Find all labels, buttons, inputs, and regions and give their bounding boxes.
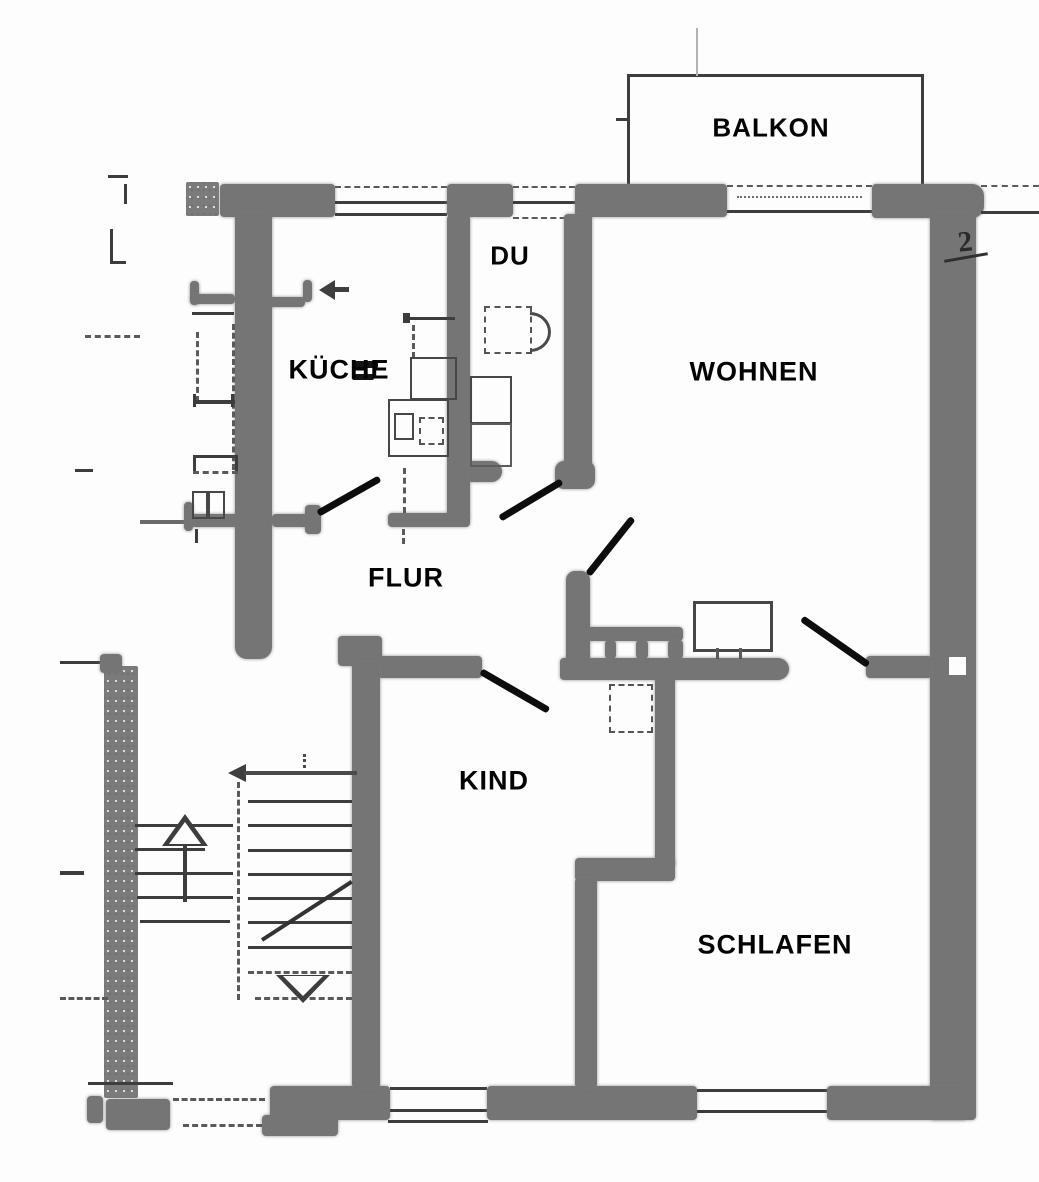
wall-kueche-flur-thin — [140, 520, 186, 524]
closet-divider-1 — [605, 640, 616, 659]
schlafen-dashed-fixture — [609, 684, 653, 733]
stairs-tread-left — [140, 920, 230, 923]
wardrobe-leg-2 — [739, 648, 742, 659]
neighbor-stub — [195, 529, 198, 543]
neighbor-line-right-2 — [981, 211, 1039, 214]
stairs-tread — [248, 897, 352, 900]
wardrobe-leg-1 — [716, 648, 719, 659]
wall-flur-schlafen — [560, 658, 789, 680]
exterior-wall-top-pier — [447, 184, 513, 217]
door-swing-du — [498, 478, 563, 521]
balcony-outline-right — [921, 74, 924, 188]
neighbor-dashdot-1 — [85, 335, 140, 338]
stairs-tread — [248, 849, 352, 852]
kueche-appliance-box — [410, 357, 457, 400]
window-kueche-mid-line — [335, 201, 447, 204]
neighbor-rect-dash — [193, 471, 238, 474]
balcony-door-outer-line — [727, 185, 872, 187]
balcony-door-inner-line — [727, 210, 872, 213]
exterior-wall-right-notch — [949, 657, 966, 675]
kueche-dash-lower-1 — [403, 468, 406, 513]
stairs-tread — [248, 824, 352, 827]
stairwell-left-dash-2 — [60, 997, 108, 1000]
door-swing-wohnen — [585, 516, 635, 577]
stairs-landing-line — [244, 771, 357, 775]
window-schlafen-inner-line — [697, 1110, 827, 1113]
wall-kind-top — [378, 656, 482, 678]
wall-kind-schlafen-lower — [575, 878, 597, 1088]
stairs-up-arrow-inner — [169, 822, 201, 844]
floor-plan-canvas: BALKON DU KÜCHE WOHNEN FLUR KIND SCHLAFE… — [0, 0, 1039, 1182]
exterior-wall-left-upper — [235, 212, 272, 659]
neighbor-bracket-3 — [110, 229, 113, 264]
window-kueche-inner-line — [335, 213, 447, 216]
washbasin-bowl-arc — [530, 312, 551, 352]
neighbor-line-2 — [193, 400, 235, 404]
room-label-wohnen: WOHNEN — [690, 357, 819, 388]
stairs-tread — [248, 800, 352, 803]
exterior-wall-bottom-jog — [262, 1115, 338, 1136]
window-du-outer-line — [513, 186, 575, 188]
neighbor-vdash-1 — [196, 332, 199, 402]
wall-du-wohnen — [564, 214, 592, 466]
exterior-wall-top-2 — [575, 184, 727, 217]
wall-kind-left — [352, 662, 380, 1088]
window-kind-inner-line — [390, 1109, 487, 1112]
sink-basin — [394, 413, 414, 440]
room-label-kueche: KÜCHE — [288, 355, 389, 386]
balcony-outline-top — [627, 74, 924, 77]
neighbor-tick-1 — [193, 394, 196, 407]
bottomleft-line — [88, 1082, 173, 1085]
closet-top-bar — [587, 627, 683, 641]
closet-pier — [566, 571, 590, 663]
window-kind-outer-line — [390, 1087, 487, 1090]
kueche-dash-lower-2 — [402, 529, 405, 544]
neighbor-line-1 — [192, 312, 234, 315]
stairwell-left-dash-1 — [60, 871, 84, 875]
closet-divider-2 — [636, 640, 648, 659]
schlafen-door-stub — [866, 656, 932, 678]
room-label-kind: KIND — [459, 766, 529, 797]
kueche-counter-line — [407, 317, 455, 320]
window-schlafen-outer-line — [697, 1089, 827, 1092]
du-fixture-2 — [470, 423, 512, 467]
stairwell-top-block — [100, 654, 122, 673]
room-label-du: DU — [490, 241, 530, 272]
stairwell-wall-left — [104, 666, 138, 1098]
wardrobe-fixture — [693, 601, 773, 652]
neighbor-rect-top — [193, 455, 238, 458]
window-kind-sill-line — [388, 1120, 488, 1123]
closet-divider-3 — [668, 640, 683, 659]
entry-landing-wall-right-cap — [303, 280, 312, 302]
balcony-tick — [616, 118, 630, 121]
neighbor-box-1 — [192, 491, 208, 519]
room-label-schlafen: SCHLAFEN — [698, 930, 853, 961]
neighbor-tick-2 — [231, 394, 234, 407]
window-kueche-outer-line — [335, 186, 447, 188]
stairs-walk-line-dots — [303, 754, 306, 774]
balcony-outline-left — [627, 74, 630, 188]
room-label-flur: FLUR — [368, 563, 444, 594]
stairs-tread — [248, 921, 352, 924]
stairs-inner-edge — [237, 782, 240, 1000]
scan-crease-line — [696, 28, 698, 76]
door-swing-kueche — [316, 475, 381, 516]
neighbor-bracket-2 — [124, 184, 127, 204]
room-label-balkon: BALKON — [712, 113, 829, 144]
entrance-arrow-tail — [333, 287, 349, 292]
sink-drainer — [419, 417, 444, 445]
stairs-down-arrow-inner — [283, 976, 323, 996]
stairwell-top-dash — [60, 661, 100, 664]
entry-landing-wall-right — [265, 297, 305, 307]
stairs-break-line — [261, 880, 353, 942]
wall-kueche-du-foot — [388, 513, 470, 527]
neighbor-box-2 — [208, 491, 225, 519]
door-swing-kind — [479, 668, 550, 713]
bottomleft-dash-1 — [173, 1098, 265, 1101]
bottomleft-dash-2 — [183, 1124, 262, 1127]
neighbor-line-right-1 — [981, 185, 1039, 187]
entry-landing-wall-left — [191, 294, 235, 304]
exterior-wall-top-end-block — [186, 182, 219, 216]
stairs-dashdot-line — [248, 971, 352, 974]
neighbor-dash-3 — [75, 469, 93, 472]
balcony-door-mid-line — [737, 196, 862, 198]
washbasin-fixture — [484, 306, 532, 354]
bottomleft-block-2 — [106, 1099, 170, 1130]
bottomleft-block-1 — [87, 1096, 103, 1123]
neighbor-bracket-4 — [110, 261, 126, 264]
wall-kind-schlafen-upper — [655, 677, 675, 867]
kueche-counter-dash — [412, 325, 415, 358]
door-swing-schlafen — [800, 616, 870, 668]
stairs-tread — [248, 873, 352, 876]
stairs-up-arrow-tail — [183, 845, 187, 902]
neighbor-bracket-1 — [108, 175, 128, 178]
stairs-tread — [248, 946, 352, 949]
stairs-tread-left — [135, 848, 205, 851]
exterior-wall-bottom-mid — [487, 1086, 697, 1120]
window-du-mid-line — [513, 201, 575, 204]
wc-fixture — [470, 376, 512, 424]
exterior-wall-bottom-right — [827, 1086, 967, 1120]
